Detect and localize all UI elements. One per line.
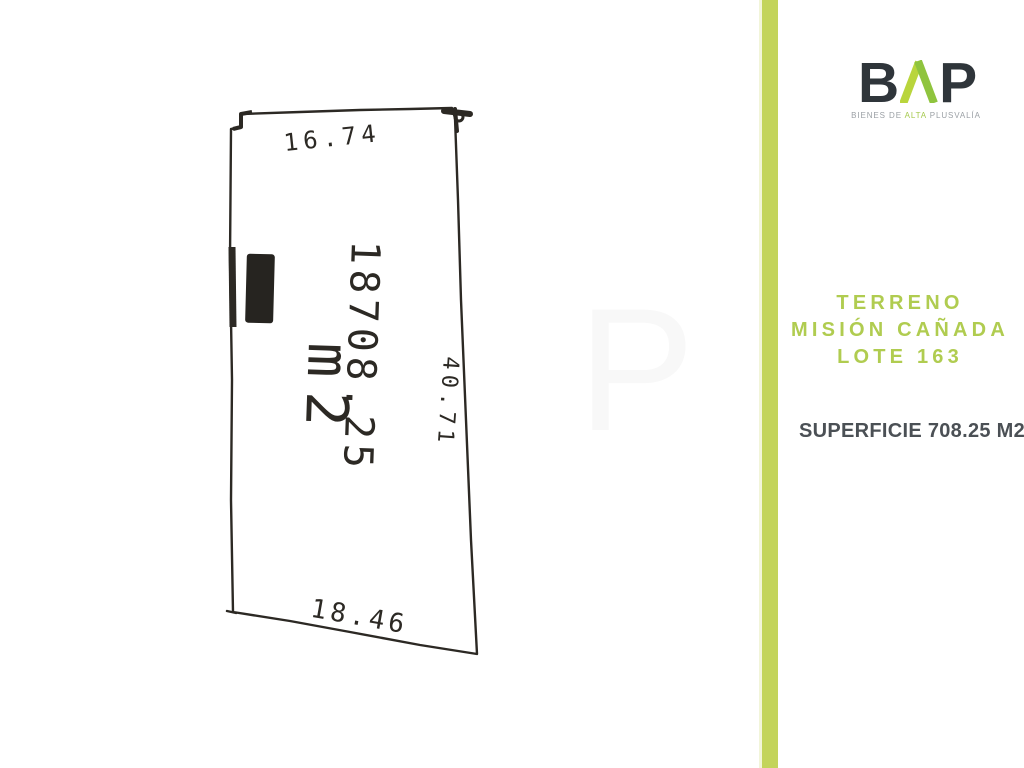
- tagline-post: PLUSVALÍA: [927, 111, 981, 120]
- top-right-corner-blob: [455, 113, 463, 121]
- dimension-right: 40.71: [432, 356, 463, 449]
- logo-letter-b: B: [858, 55, 899, 112]
- logo-letter-p: P: [939, 55, 977, 112]
- bap-caret-icon: [900, 60, 938, 103]
- access-bar-mark: [245, 254, 275, 324]
- top-left-corner-notch: [233, 112, 252, 129]
- flyer-canvas: P 16.74 40.71 18.46 18708.25 m2 B: [0, 0, 1024, 768]
- caret-right-stroke: [918, 61, 934, 103]
- green-divider-bar: [759, 0, 778, 768]
- title-line-mision-canada: MISIÓN CAÑADA: [766, 317, 1024, 344]
- listing-title: TERRENO MISIÓN CAÑADA LOTE 163: [766, 290, 1024, 371]
- left-edge-thick-segment: [232, 247, 233, 327]
- dimension-top: 16.74: [282, 119, 382, 157]
- tagline-highlight: ALTA: [905, 111, 927, 120]
- area-unit-rotated: m2: [292, 342, 363, 442]
- tagline-pre: BIENES DE: [851, 111, 904, 120]
- surface-area-text: SUPERFICIE 708.25 M2: [762, 420, 1024, 443]
- title-line-lote: LOTE 163: [766, 344, 1024, 371]
- brand-tagline: BIENES DE ALTA PLUSVALÍA: [838, 111, 994, 120]
- brand-logo: B P: [858, 55, 977, 112]
- title-line-terreno: TERRENO: [766, 290, 1024, 317]
